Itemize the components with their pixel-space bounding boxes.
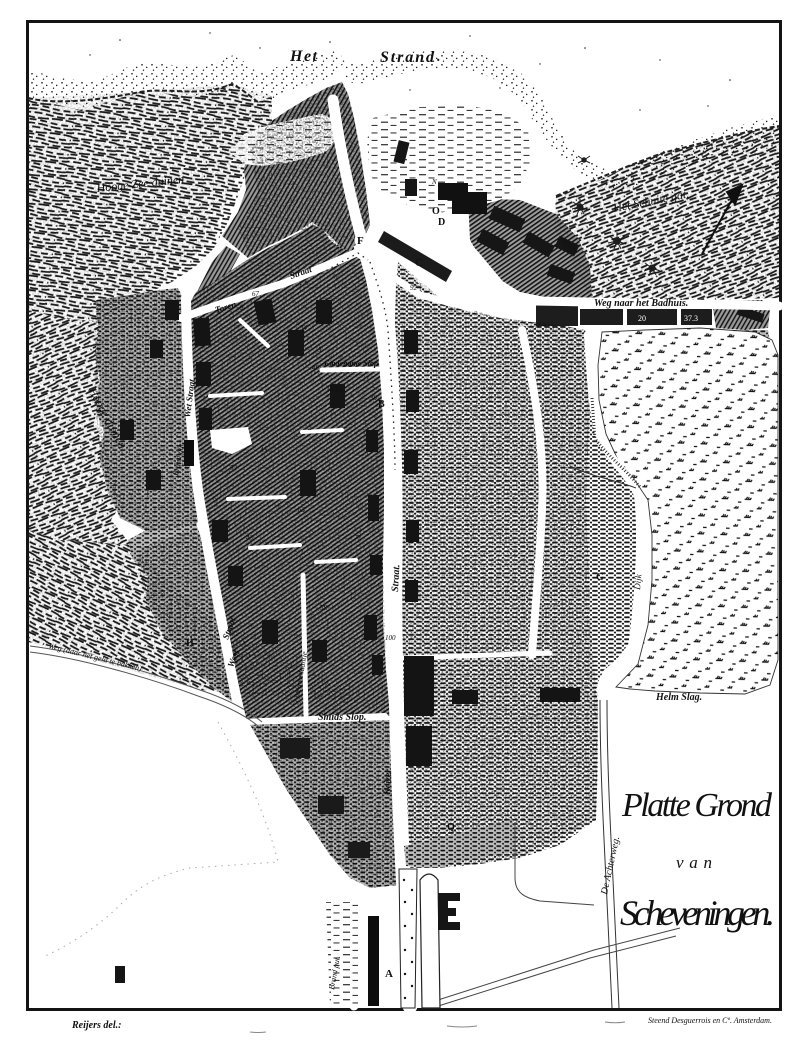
svg-text:Strand: Strand xyxy=(380,49,435,66)
svg-text:Emdename Slop: Emdename Slop xyxy=(323,359,378,368)
svg-text:49: 49 xyxy=(312,364,320,372)
svg-text:H: H xyxy=(186,638,194,649)
svg-text:.: . xyxy=(437,50,441,65)
svg-text:Het: Het xyxy=(289,48,318,65)
svg-text:39: 39 xyxy=(369,394,378,402)
svg-text:Steend Desguerrois en Cº. Amst: Steend Desguerrois en Cº. Amsterdam. xyxy=(648,1016,772,1025)
svg-text:2: 2 xyxy=(308,424,312,432)
svg-text:Reijers del.:: Reijers del.: xyxy=(71,1020,121,1031)
svg-text:59: 59 xyxy=(236,304,244,312)
svg-text:Scheveningen.: Scheveningen. xyxy=(620,893,775,933)
svg-text:B: B xyxy=(378,399,385,410)
svg-text:37.3: 37.3 xyxy=(684,314,698,323)
svg-text:Helm Slag.: Helm Slag. xyxy=(655,692,702,703)
svg-text:A: A xyxy=(385,968,393,980)
svg-text:43: 43 xyxy=(246,534,254,542)
svg-text:20: 20 xyxy=(638,314,646,323)
svg-text:45: 45 xyxy=(260,446,268,454)
svg-text:Keizer: Keizer xyxy=(382,768,394,796)
svg-text:67: 67 xyxy=(252,290,260,298)
svg-text:5: 5 xyxy=(318,346,322,354)
svg-text:20.13: 20.13 xyxy=(326,386,342,394)
svg-text:G: G xyxy=(596,572,604,583)
svg-text:O: O xyxy=(432,206,440,217)
svg-text:Dijk: Dijk xyxy=(632,573,643,591)
svg-text:van: van xyxy=(676,853,712,872)
svg-text:Smids Slop.: Smids Slop. xyxy=(318,712,366,723)
svg-text:F: F xyxy=(357,235,364,247)
svg-text:Straat.: Straat. xyxy=(390,564,402,592)
svg-text:58: 58 xyxy=(320,604,328,612)
svg-text:Platte Grond: Platte Grond xyxy=(621,787,773,824)
svg-text:C: C xyxy=(415,257,423,269)
svg-text:N: N xyxy=(431,178,437,186)
svg-text:34: 34 xyxy=(299,324,308,332)
svg-text:Q: Q xyxy=(447,822,455,833)
svg-text:77: 77 xyxy=(354,534,362,542)
svg-text:100: 100 xyxy=(385,634,396,642)
svg-text:52: 52 xyxy=(230,464,238,472)
svg-text:65: 65 xyxy=(298,506,306,514)
svg-text:D: D xyxy=(438,217,445,228)
svg-text:Weg naar het Badhuis.: Weg naar het Badhuis. xyxy=(594,298,688,309)
svg-text:92: 92 xyxy=(410,284,418,292)
